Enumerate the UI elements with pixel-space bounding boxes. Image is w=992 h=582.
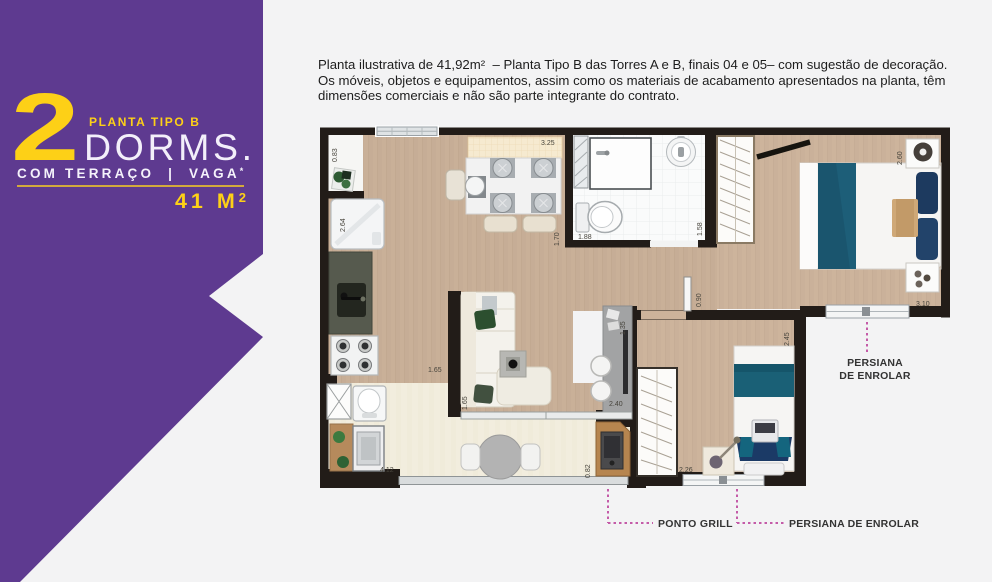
svg-text:1.70: 1.70 (554, 232, 561, 246)
svg-text:2.26: 2.26 (679, 467, 693, 474)
svg-text:1.65: 1.65 (462, 396, 469, 410)
svg-text:3.25: 3.25 (541, 140, 555, 147)
svg-text:1.35: 1.35 (620, 321, 627, 335)
svg-text:4.12: 4.12 (380, 467, 394, 474)
svg-text:2.40: 2.40 (609, 401, 623, 408)
svg-text:0.90: 0.90 (696, 293, 703, 307)
svg-text:1.58: 1.58 (697, 222, 704, 236)
svg-text:1.88: 1.88 (578, 234, 592, 241)
svg-text:3.10: 3.10 (916, 301, 930, 308)
svg-text:2.60: 2.60 (897, 151, 904, 165)
svg-text:0.83: 0.83 (332, 148, 339, 162)
svg-text:2.45: 2.45 (784, 332, 791, 346)
svg-text:2.64: 2.64 (340, 218, 347, 232)
svg-text:0.82: 0.82 (585, 464, 592, 478)
svg-text:1.65: 1.65 (428, 367, 442, 374)
